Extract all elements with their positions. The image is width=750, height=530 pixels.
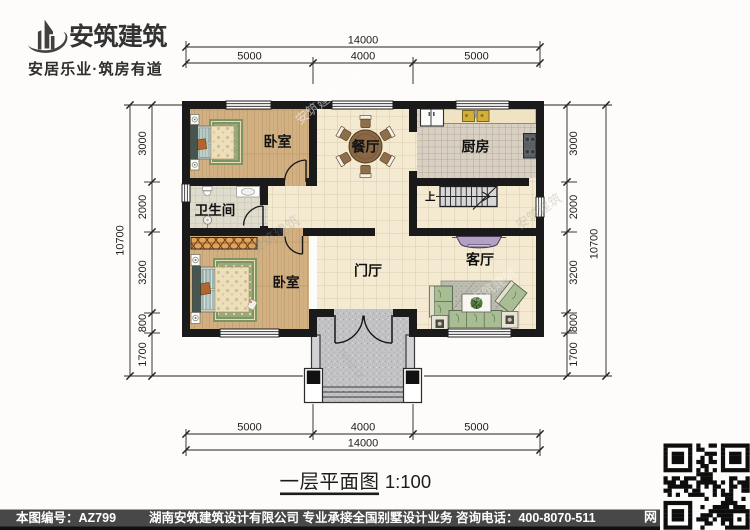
svg-text:1700: 1700 xyxy=(137,342,149,366)
svg-text:10700: 10700 xyxy=(589,229,601,260)
svg-text:10700: 10700 xyxy=(115,225,127,256)
svg-text:5000: 5000 xyxy=(464,51,488,63)
svg-text:1700: 1700 xyxy=(568,342,580,366)
svg-text:客厅: 客厅 xyxy=(465,252,494,268)
svg-text:14000: 14000 xyxy=(348,35,379,47)
svg-text:卧室: 卧室 xyxy=(264,134,292,150)
svg-text:上: 上 xyxy=(425,190,436,203)
svg-text:本图编号：AZ799: 本图编号：AZ799 xyxy=(16,510,116,525)
svg-text:3000: 3000 xyxy=(568,131,580,155)
svg-text:安筑建筑: 安筑建筑 xyxy=(69,22,167,51)
svg-text:3200: 3200 xyxy=(137,260,149,284)
svg-text:1:100: 1:100 xyxy=(385,471,431,492)
svg-text:5000: 5000 xyxy=(237,51,261,63)
svg-text:餐厅: 餐厅 xyxy=(351,139,380,155)
svg-text:一层平面图: 一层平面图 xyxy=(279,471,379,493)
svg-text:3000: 3000 xyxy=(137,131,149,155)
svg-text:800: 800 xyxy=(137,314,149,332)
svg-text:2000: 2000 xyxy=(137,195,149,219)
svg-text:卧室: 卧室 xyxy=(273,274,300,290)
svg-text:14000: 14000 xyxy=(348,438,379,450)
svg-text:5000: 5000 xyxy=(237,422,261,434)
svg-text:卫生间: 卫生间 xyxy=(195,202,236,218)
svg-text:5000: 5000 xyxy=(464,422,488,434)
svg-text:门厅: 门厅 xyxy=(354,263,382,279)
svg-text:2000: 2000 xyxy=(568,195,580,219)
svg-text:厨房: 厨房 xyxy=(462,139,490,155)
svg-text:安居乐业·筑房有道: 安居乐业·筑房有道 xyxy=(28,60,163,78)
svg-text:3200: 3200 xyxy=(568,260,580,284)
svg-text:湖南安筑建筑设计有限公司 专业承接全国别墅设计业务 咨询: 湖南安筑建筑设计有限公司 专业承接全国别墅设计业务 咨询电话：400-8070-… xyxy=(149,510,596,525)
svg-text:4000: 4000 xyxy=(351,422,375,434)
svg-text:网: 网 xyxy=(644,510,657,525)
svg-text:4000: 4000 xyxy=(351,51,375,63)
svg-text:800: 800 xyxy=(568,314,580,332)
